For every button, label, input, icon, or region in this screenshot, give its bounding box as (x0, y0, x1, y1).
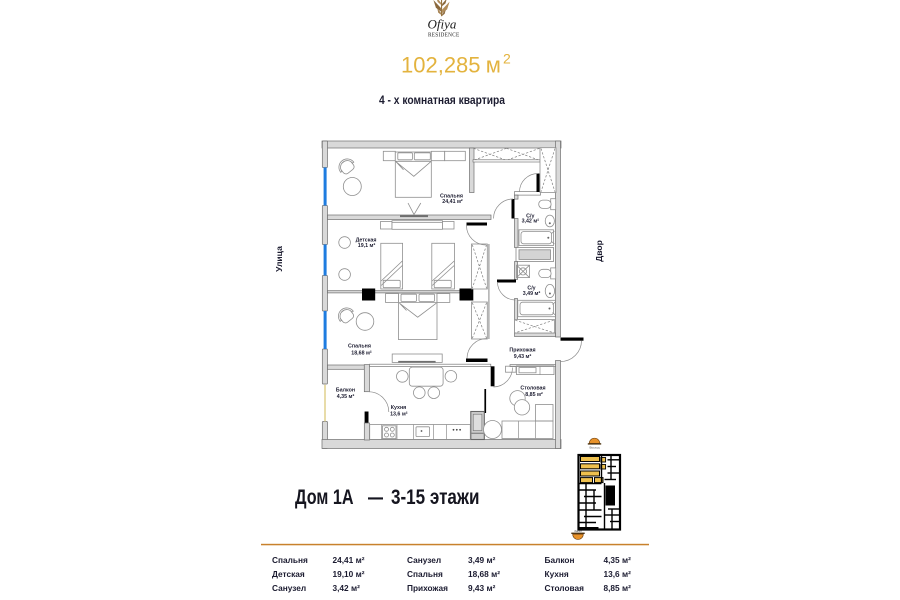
svg-text:9,43 м²: 9,43 м² (468, 583, 496, 593)
svg-text:Детская: Детская (272, 569, 305, 579)
svg-text:13,6 м²: 13,6 м² (390, 412, 408, 418)
svg-text:Спальня: Спальня (407, 569, 443, 579)
svg-text:4,35 м²: 4,35 м² (337, 394, 355, 400)
svg-text:Балкон: Балкон (545, 555, 575, 565)
svg-text:Санузел: Санузел (407, 555, 441, 565)
svg-text:Ofiya: Ofiya (428, 16, 457, 31)
svg-text:Спальня: Спальня (272, 555, 308, 565)
svg-text:24,41 м²: 24,41 м² (333, 555, 365, 565)
svg-text:Кухня: Кухня (545, 569, 569, 579)
svg-text:Санузел: Санузел (272, 583, 306, 593)
svg-text:Спальня: Спальня (348, 344, 371, 350)
svg-text:18,68 м²: 18,68 м² (468, 569, 500, 579)
svg-text:19,1 м²: 19,1 м² (358, 243, 376, 249)
svg-text:8,85 м²: 8,85 м² (604, 583, 632, 593)
svg-text:Кухня: Кухня (391, 405, 406, 411)
svg-text:3-15 этажи: 3-15 этажи (391, 485, 480, 509)
svg-text:Прихожая: Прихожая (509, 348, 535, 354)
svg-text:Восход: Восход (590, 445, 600, 449)
svg-text:Закат: Закат (574, 529, 582, 533)
svg-text:—: — (368, 485, 383, 509)
svg-text:24,41 м²: 24,41 м² (442, 199, 463, 205)
svg-text:Дом 1А: Дом 1А (295, 485, 354, 509)
svg-text:RESIDENCE: RESIDENCE (428, 33, 460, 39)
svg-text:3,49 м²: 3,49 м² (468, 555, 496, 565)
svg-text:9,43 м²: 9,43 м² (514, 354, 532, 360)
svg-text:Столовая: Столовая (545, 583, 585, 593)
svg-text:19,10 м²: 19,10 м² (333, 569, 365, 579)
svg-text:102,285м: 102,285м (401, 52, 501, 77)
svg-text:4,35 м²: 4,35 м² (604, 555, 632, 565)
svg-text:13,6 м²: 13,6 м² (604, 569, 632, 579)
svg-text:Прихожая: Прихожая (407, 583, 448, 593)
svg-text:Двор: Двор (594, 240, 604, 262)
svg-text:Столовая: Столовая (520, 386, 545, 392)
svg-text:Балкон: Балкон (336, 388, 355, 394)
svg-text:18,68 м²: 18,68 м² (351, 351, 372, 357)
svg-text:2: 2 (503, 51, 511, 67)
svg-text:3,42 м²: 3,42 м² (522, 219, 540, 225)
svg-text:3,42 м²: 3,42 м² (333, 583, 361, 593)
svg-text:8,85 м²: 8,85 м² (525, 392, 543, 398)
svg-text:4 - х комнатная квартира: 4 - х комнатная квартира (379, 93, 505, 107)
svg-text:Улица: Улица (274, 246, 284, 272)
svg-text:3,49 м²: 3,49 м² (523, 291, 541, 297)
